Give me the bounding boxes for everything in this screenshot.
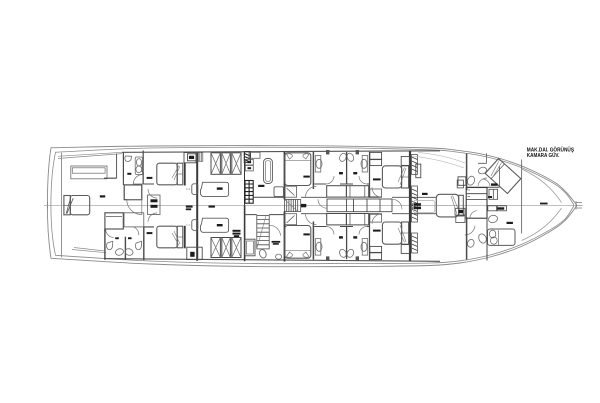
- svg-text:KAMARA GÜV.: KAMARA GÜV.: [527, 152, 560, 159]
